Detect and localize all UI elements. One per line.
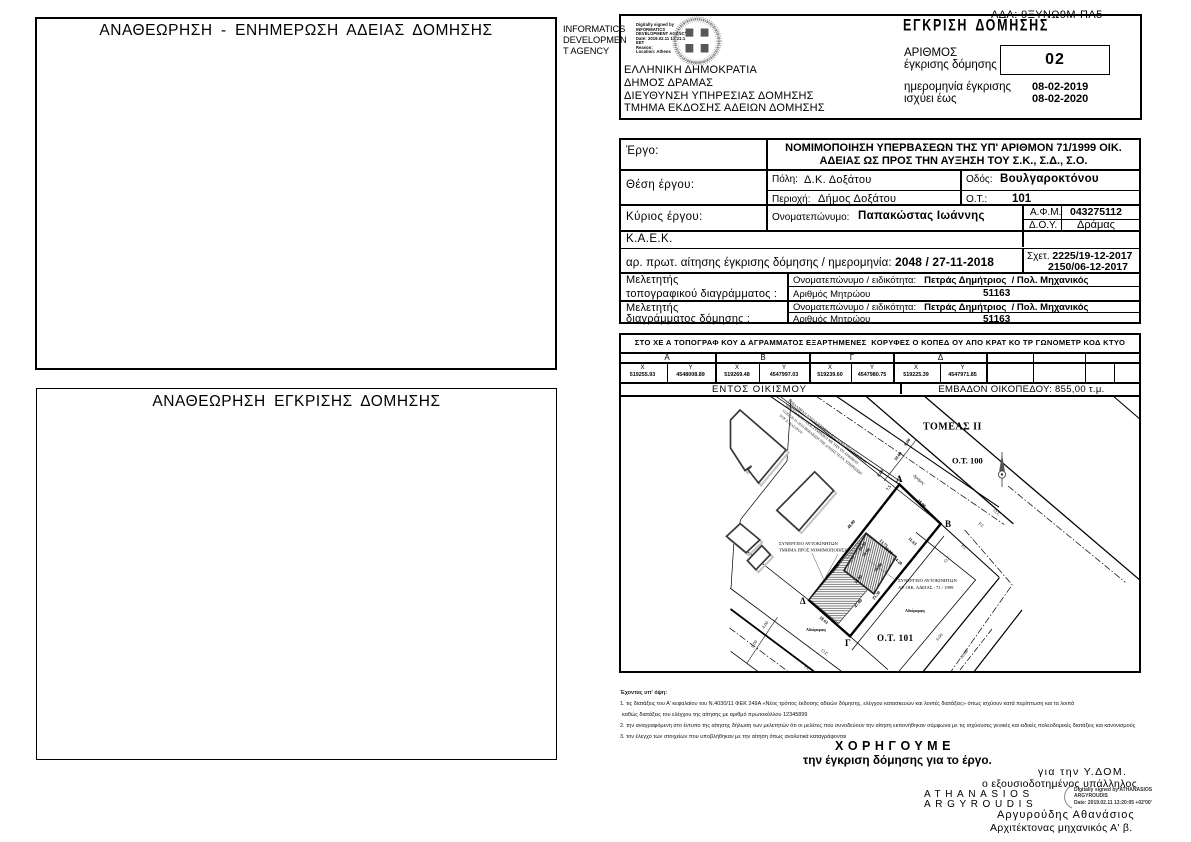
svg-text:11.63: 11.63 xyxy=(907,536,918,547)
svg-text:ΤΟΜΕΑΣ ΙΙ: ΤΟΜΕΑΣ ΙΙ xyxy=(923,422,982,433)
svg-text:Γ: Γ xyxy=(845,638,851,648)
svg-text:ΣΥΝΕΡΓΕΙΟ ΑΥΤΟΚΙΝΗΤΩΝ: ΣΥΝΕΡΓΕΙΟ ΑΥΤΟΚΙΝΗΤΩΝ xyxy=(779,541,838,546)
svg-text:Ο.Γ.: Ο.Γ. xyxy=(943,554,952,563)
svg-text:4.00: 4.00 xyxy=(761,620,770,630)
svg-text:Ο.Τ. 100: Ο.Τ. 100 xyxy=(952,456,983,466)
svg-text:Ρ.Γ.: Ρ.Γ. xyxy=(960,543,968,551)
svg-text:11282/26-11-2018 ΒΕΒΑΙΩΣΗ ΤΗΣ: 11282/26-11-2018 ΒΕΒΑΙΩΣΗ ΤΗΣ Δ/ΝΣΗΣ ΤΕΧ… xyxy=(781,409,863,476)
svg-text:Β: Β xyxy=(945,519,951,529)
svg-text:Ρ.Γ.: Ρ.Γ. xyxy=(977,521,985,529)
svg-text:6.00: 6.00 xyxy=(903,437,912,447)
svg-text:4.20: 4.20 xyxy=(894,557,904,566)
svg-text:6.00: 6.00 xyxy=(935,632,944,642)
svg-text:Ο.Γ.: Ο.Γ. xyxy=(820,648,829,657)
svg-text:ΥΦΙΣΤΑΜΕΝΗ ΟΔΟΣ ΣΥΜΦΩΝΑ ΜΕ: ΥΦΙΣΤΑΜΕΝΗ ΟΔΟΣ ΣΥΜΦΩΝΑ ΜΕ ΤΗΝ ΥΠ ΑΡΙΘΜΟ… xyxy=(784,404,859,466)
svg-text:Α: Α xyxy=(896,474,903,484)
svg-text:10.00: 10.00 xyxy=(893,450,904,461)
svg-text:48.00: 48.00 xyxy=(846,518,857,529)
svg-text:Δρόμος: Δρόμος xyxy=(912,472,926,485)
svg-text:10.00: 10.00 xyxy=(959,648,970,660)
svg-text:ΣΥΝΕΡΓΕΙΟ ΑΥΤΟΚΙΝΗΤΩΝ: ΣΥΝΕΡΓΕΙΟ ΑΥΤΟΚΙΝΗΤΩΝ xyxy=(898,578,957,583)
svg-text:ΤΜΗΜΑ ΠΡΟΣ ΝΟΜΙΜΟΠΟΙΗΣΗ: ΤΜΗΜΑ ΠΡΟΣ ΝΟΜΙΜΟΠΟΙΗΣΗ xyxy=(779,548,848,553)
svg-text:Αδιάμορφη: Αδιάμορφη xyxy=(806,627,826,632)
svg-text:Αδιάμορφη: Αδιάμορφη xyxy=(905,608,925,613)
svg-text:Δ: Δ xyxy=(800,596,806,606)
svg-text:ΑΡ. ΟΙΚ. ΑΔΕΙΑΣ : 71 / 1999: ΑΡ. ΟΙΚ. ΑΔΕΙΑΣ : 71 / 1999 xyxy=(898,585,954,590)
svg-text:Ο.Τ. 101: Ο.Τ. 101 xyxy=(877,633,914,643)
svg-text:Ρ.Γ.: Ρ.Γ. xyxy=(803,664,811,671)
svg-text:Ο.Γ.: Ο.Γ. xyxy=(992,508,1001,517)
